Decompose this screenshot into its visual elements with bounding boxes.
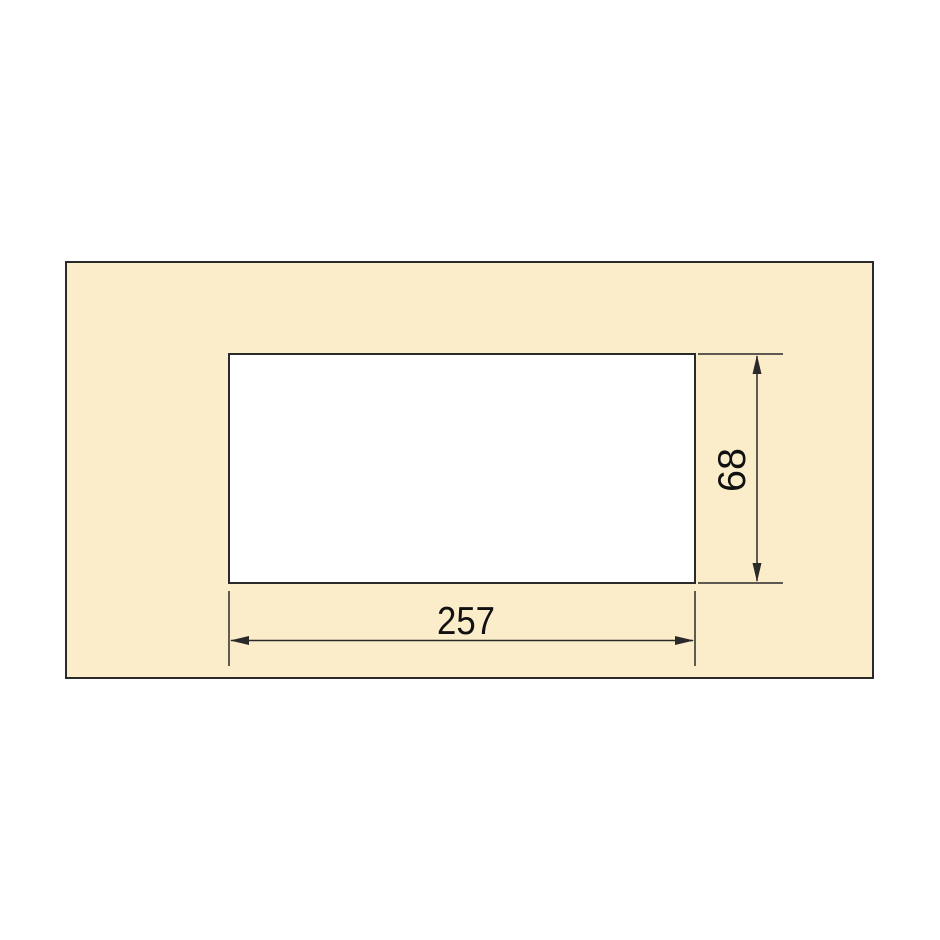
technical-drawing: 257 68 <box>0 0 940 940</box>
cutout-opening <box>229 354 695 583</box>
drawing-page: 257 68 <box>0 0 940 940</box>
width-dimension-label: 257 <box>437 600 495 643</box>
height-dimension-label: 68 <box>711 448 754 492</box>
